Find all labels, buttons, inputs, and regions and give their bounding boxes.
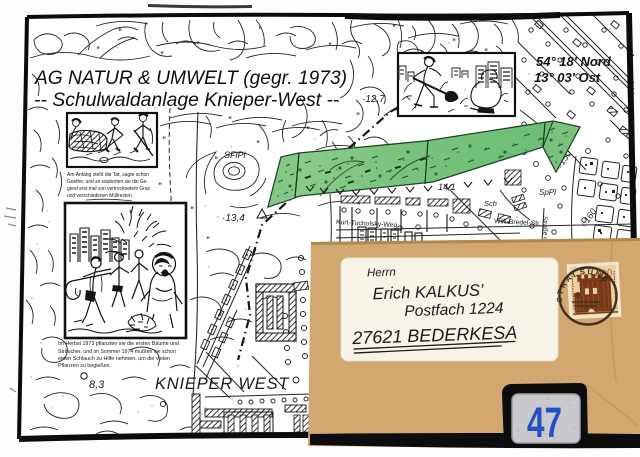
svg-text:Am Anfang steht die Tat, sagte: Am Anfang steht die Tat, sagte schon <box>67 172 149 178</box>
svg-text:Pflanzen zu begießen.: Pflanzen zu begießen. <box>58 363 111 369</box>
svg-text:gend erst mal von vertrocknete: gend erst mal von vertrocknetem Gras <box>67 186 150 192</box>
svg-text:·12,7: ·12,7 <box>362 94 385 105</box>
svg-text:″: ″ <box>214 157 218 165</box>
svg-text:″: ″ <box>356 113 360 121</box>
svg-text:″: ″ <box>256 141 260 149</box>
svg-text:-9.: -9. <box>573 291 582 300</box>
svg-text:Goethe, und so säuberten sie d: Goethe, und so säuberten sie die Ge- <box>67 179 148 185</box>
svg-text:″: ″ <box>328 43 332 51</box>
svg-text:″: ″ <box>228 117 232 125</box>
svg-text:47: 47 <box>527 399 562 447</box>
svg-text:″: ″ <box>258 27 262 35</box>
svg-text:″: ″ <box>158 183 162 191</box>
svg-text:″: ″ <box>206 237 210 245</box>
svg-text:Herrn: Herrn <box>367 267 396 280</box>
svg-text:·13,4: ·13,4 <box>222 213 245 224</box>
svg-text:13° 03′ Ost: 13° 03′ Ost <box>534 70 601 85</box>
svg-text:″: ″ <box>392 25 396 33</box>
svg-text:″: ″ <box>190 207 194 215</box>
svg-text:″: ″ <box>306 127 310 135</box>
svg-text:SpPl: SpPl <box>539 188 556 197</box>
svg-text:″: ″ <box>118 29 122 37</box>
svg-text:KNIEPER WEST: KNIEPER WEST <box>155 375 290 393</box>
svg-text:Im Herbst 1973 pflanzten sie d: Im Herbst 1973 pflanzten sie die ersten … <box>58 341 179 347</box>
svg-text:einen Schlauch zu Hilfe nehmen: einen Schlauch zu Hilfe nehmen, um die v… <box>58 356 170 362</box>
svg-text:″: ″ <box>96 47 100 55</box>
svg-text:″: ″ <box>160 52 164 60</box>
svg-text:″: ″ <box>162 137 166 145</box>
svg-text:-- Schulwaldanlage Knieper-Wes: -- Schulwaldanlage Knieper-West -- <box>34 89 340 111</box>
svg-text:″: ″ <box>196 42 200 50</box>
svg-text:und verschiedenen Müllresten.: und verschiedenen Müllresten. <box>67 193 133 199</box>
svg-text:″: ″ <box>452 39 456 47</box>
svg-text:Sträucher, und im Sommer 1974: Sträucher, und im Sommer 1974 mußten sie… <box>58 349 176 355</box>
svg-text:Sch: Sch <box>484 199 497 208</box>
svg-text:Postfach 1224: Postfach 1224 <box>404 300 504 320</box>
svg-text:AG NATUR & UMWELT (gegr. 1973): AG NATUR & UMWELT (gegr. 1973) <box>34 68 347 89</box>
svg-text:8,3: 8,3 <box>89 379 105 391</box>
